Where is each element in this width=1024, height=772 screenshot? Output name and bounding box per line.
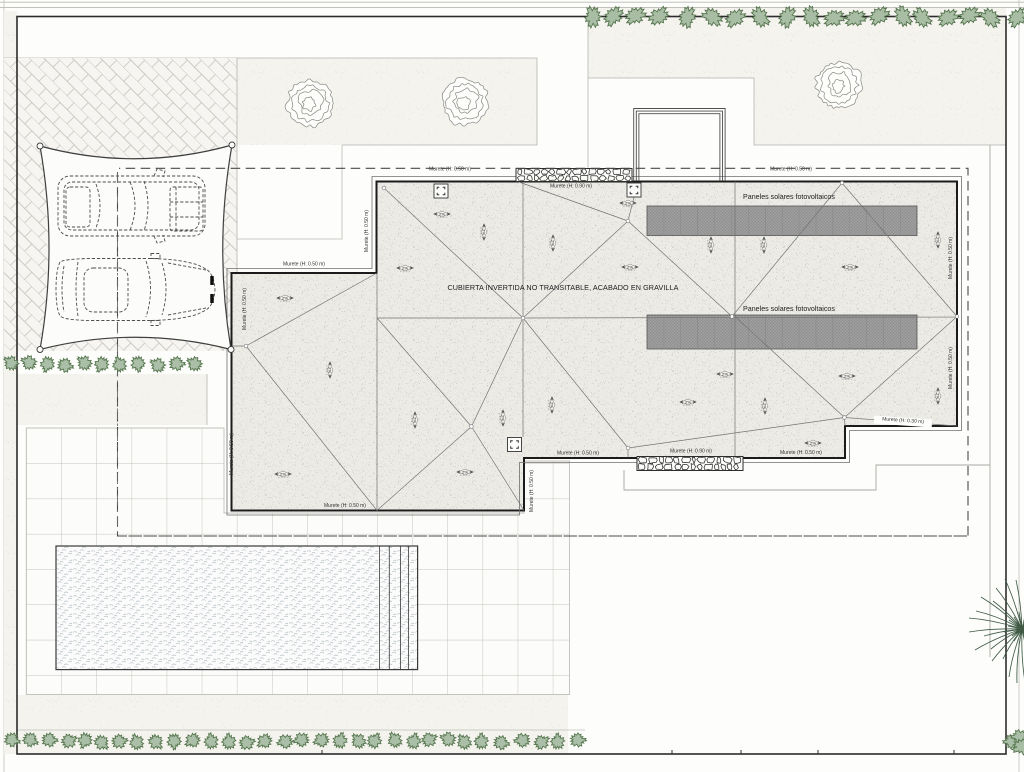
svg-text:Murete (H: 0.50 m): Murete (H: 0.50 m) (948, 237, 954, 279)
svg-text:Murete (H: 0.50 m): Murete (H: 0.50 m) (229, 433, 235, 475)
svg-text:Murete (H: 0.90 m): Murete (H: 0.90 m) (550, 184, 592, 190)
svg-text:Murete (H: 0.50 m): Murete (H: 0.50 m) (557, 451, 599, 457)
svg-text:Murete (H: 0.50 m): Murete (H: 0.50 m) (429, 166, 471, 172)
svg-text:Paneles solares fotovoltaicos: Paneles solares fotovoltaicos (743, 305, 835, 313)
svg-text:Murete (H: 0.50 m): Murete (H: 0.50 m) (770, 167, 812, 173)
svg-text:Murete (H: 0.50 m): Murete (H: 0.50 m) (948, 347, 954, 389)
svg-text:Murete (H: 0.50 m): Murete (H: 0.50 m) (529, 470, 535, 512)
svg-text:CUBIERTA INVERTIDA NO TRANSITA: CUBIERTA INVERTIDA NO TRANSITABLE, ACABA… (447, 283, 678, 292)
svg-text:Murete (H: 0.50 m): Murete (H: 0.50 m) (324, 503, 366, 509)
svg-text:Murete (H: 0.90 m): Murete (H: 0.90 m) (670, 449, 712, 455)
svg-text:Murete (H: 0.50 m): Murete (H: 0.50 m) (242, 288, 248, 330)
svg-text:Paneles solares fotovoltaicos: Paneles solares fotovoltaicos (743, 193, 835, 201)
svg-text:Murete (H: 0.50 m): Murete (H: 0.50 m) (780, 450, 822, 456)
svg-text:Murete (H: 0.50 m): Murete (H: 0.50 m) (364, 210, 370, 252)
svg-text:Murete (H: 0.50 m): Murete (H: 0.50 m) (283, 262, 325, 268)
